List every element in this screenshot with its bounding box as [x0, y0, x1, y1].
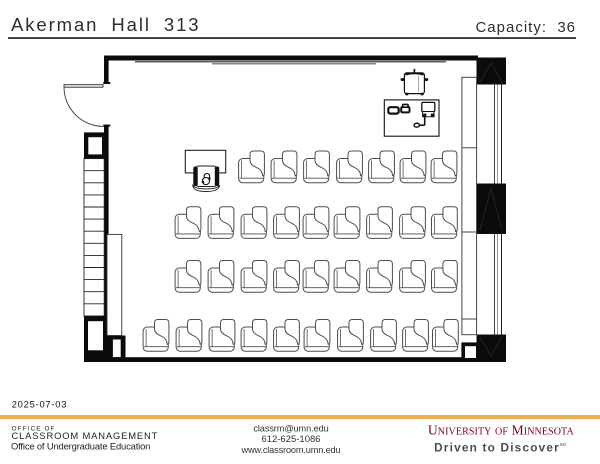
svg-text:2025-07-03: 2025-07-03 — [12, 400, 68, 410]
svg-text:CLASSROOM MANAGEMENT: CLASSROOM MANAGEMENT — [12, 430, 159, 441]
svg-text:University of Minnesota: University of Minnesota — [428, 423, 575, 438]
svg-text:Office of Undergraduate Educat: Office of Undergraduate Education — [11, 441, 150, 452]
svg-text:classrm@umn.edu: classrm@umn.edu — [253, 423, 328, 433]
svg-text:Driven to Discover: Driven to Discover — [434, 441, 560, 455]
svg-text:612-625-1086: 612-625-1086 — [261, 434, 320, 445]
svg-text:www.classroom.umn.edu: www.classroom.umn.edu — [241, 445, 341, 455]
svg-text:Capacity: 36: Capacity: 36 — [475, 19, 576, 36]
svg-text:Akerman Hall 313: Akerman Hall 313 — [11, 14, 200, 35]
svg-text:SM: SM — [560, 442, 567, 447]
